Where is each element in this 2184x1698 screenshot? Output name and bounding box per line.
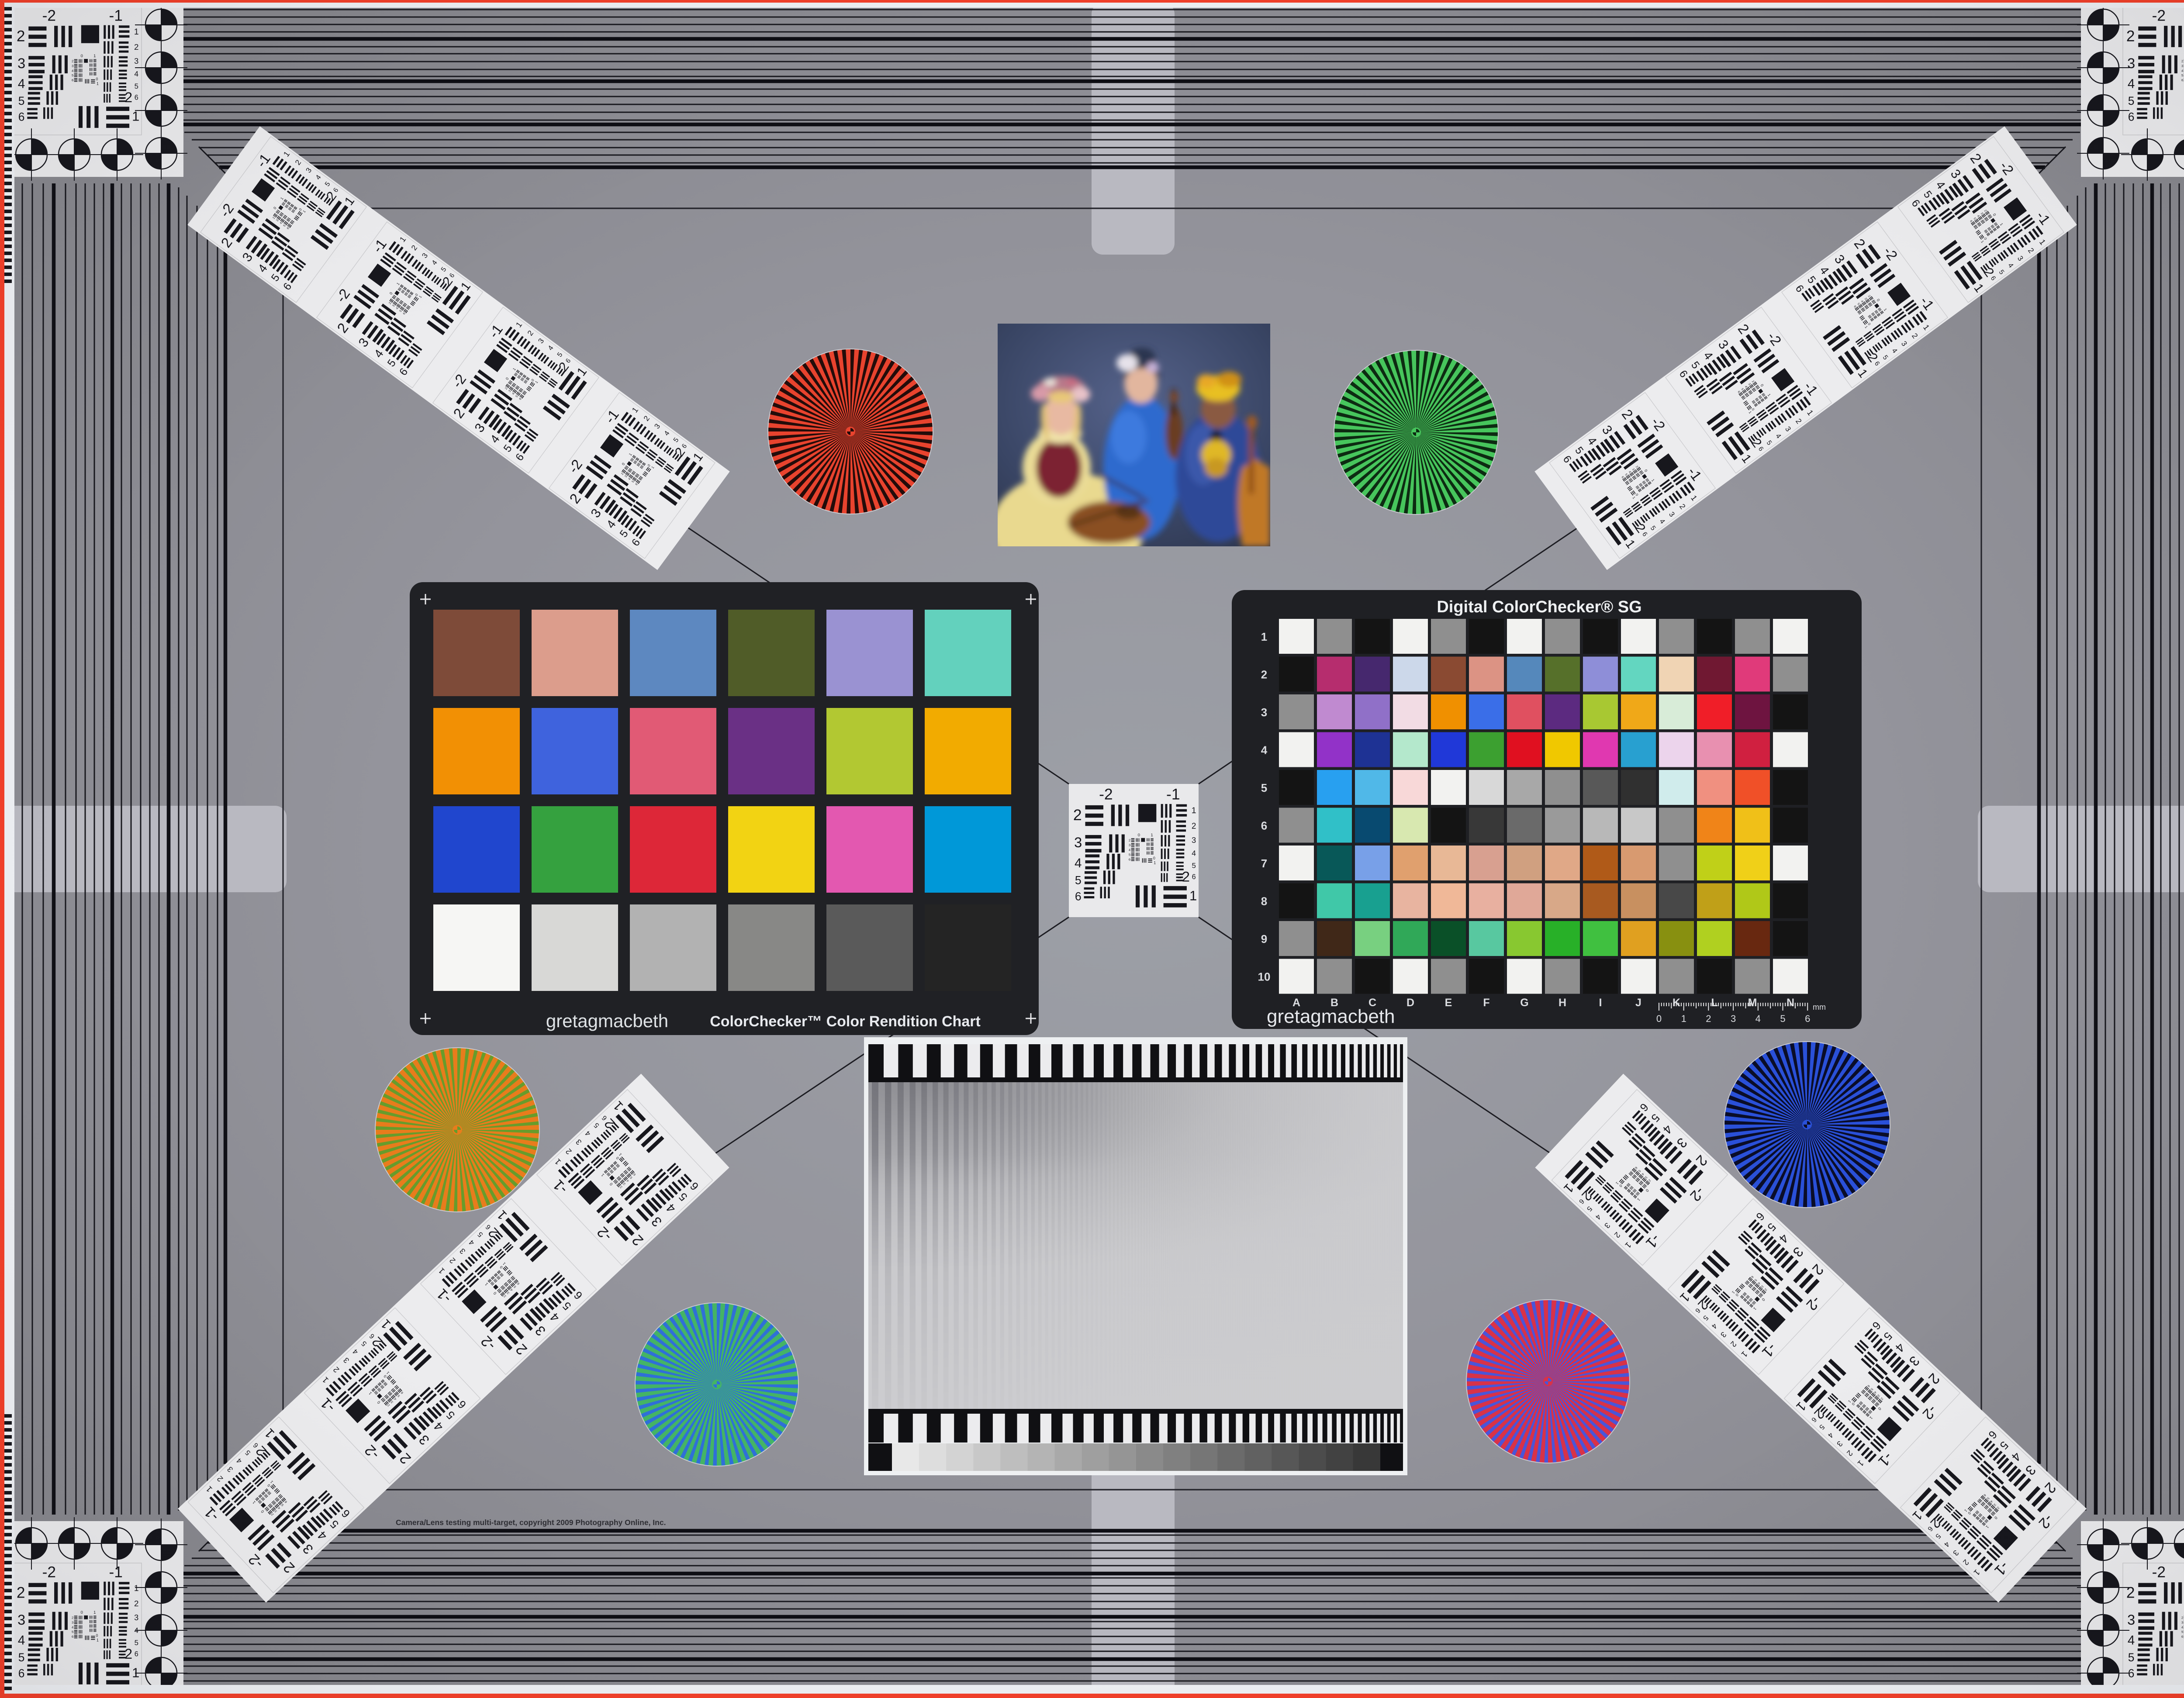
svg-text:I: I [1599, 997, 1602, 1009]
svg-text:1: 1 [1261, 630, 1267, 643]
svg-text:6: 6 [1261, 819, 1267, 832]
svg-text:mm: mm [1813, 1003, 1826, 1011]
svg-text:2: 2 [1706, 1013, 1711, 1024]
svg-text:4: 4 [1755, 1013, 1761, 1024]
svg-text:E: E [1445, 997, 1452, 1009]
svg-text:F: F [1483, 997, 1489, 1009]
svg-text:Camera/Lens testing multi-targ: Camera/Lens testing multi-target, copyri… [396, 1518, 666, 1527]
svg-text:gretagmacbeth: gretagmacbeth [546, 1011, 668, 1031]
svg-text:7: 7 [1261, 857, 1267, 870]
svg-text:gretagmacbeth: gretagmacbeth [1267, 1006, 1395, 1027]
svg-text:3: 3 [1731, 1013, 1736, 1024]
svg-text:J: J [1635, 997, 1641, 1009]
svg-text:5: 5 [1780, 1013, 1785, 1024]
svg-text:Digital ColorChecker® SG: Digital ColorChecker® SG [1437, 598, 1641, 616]
svg-text:D: D [1406, 997, 1414, 1009]
svg-text:3: 3 [1261, 706, 1267, 719]
svg-text:H: H [1559, 997, 1566, 1009]
svg-text:5: 5 [1261, 781, 1267, 794]
svg-text:ColorChecker™ Color Rendition: ColorChecker™ Color Rendition Chart [710, 1013, 981, 1030]
svg-text:8: 8 [1261, 895, 1267, 908]
svg-text:1: 1 [1681, 1013, 1686, 1024]
svg-text:6: 6 [1805, 1013, 1810, 1024]
svg-text:0: 0 [1656, 1013, 1662, 1024]
svg-text:10: 10 [1258, 970, 1271, 984]
svg-text:9: 9 [1261, 932, 1267, 946]
svg-text:4: 4 [1261, 744, 1268, 757]
svg-text:L: L [1711, 997, 1717, 1009]
svg-text:2: 2 [1261, 668, 1267, 681]
svg-text:G: G [1520, 997, 1528, 1009]
